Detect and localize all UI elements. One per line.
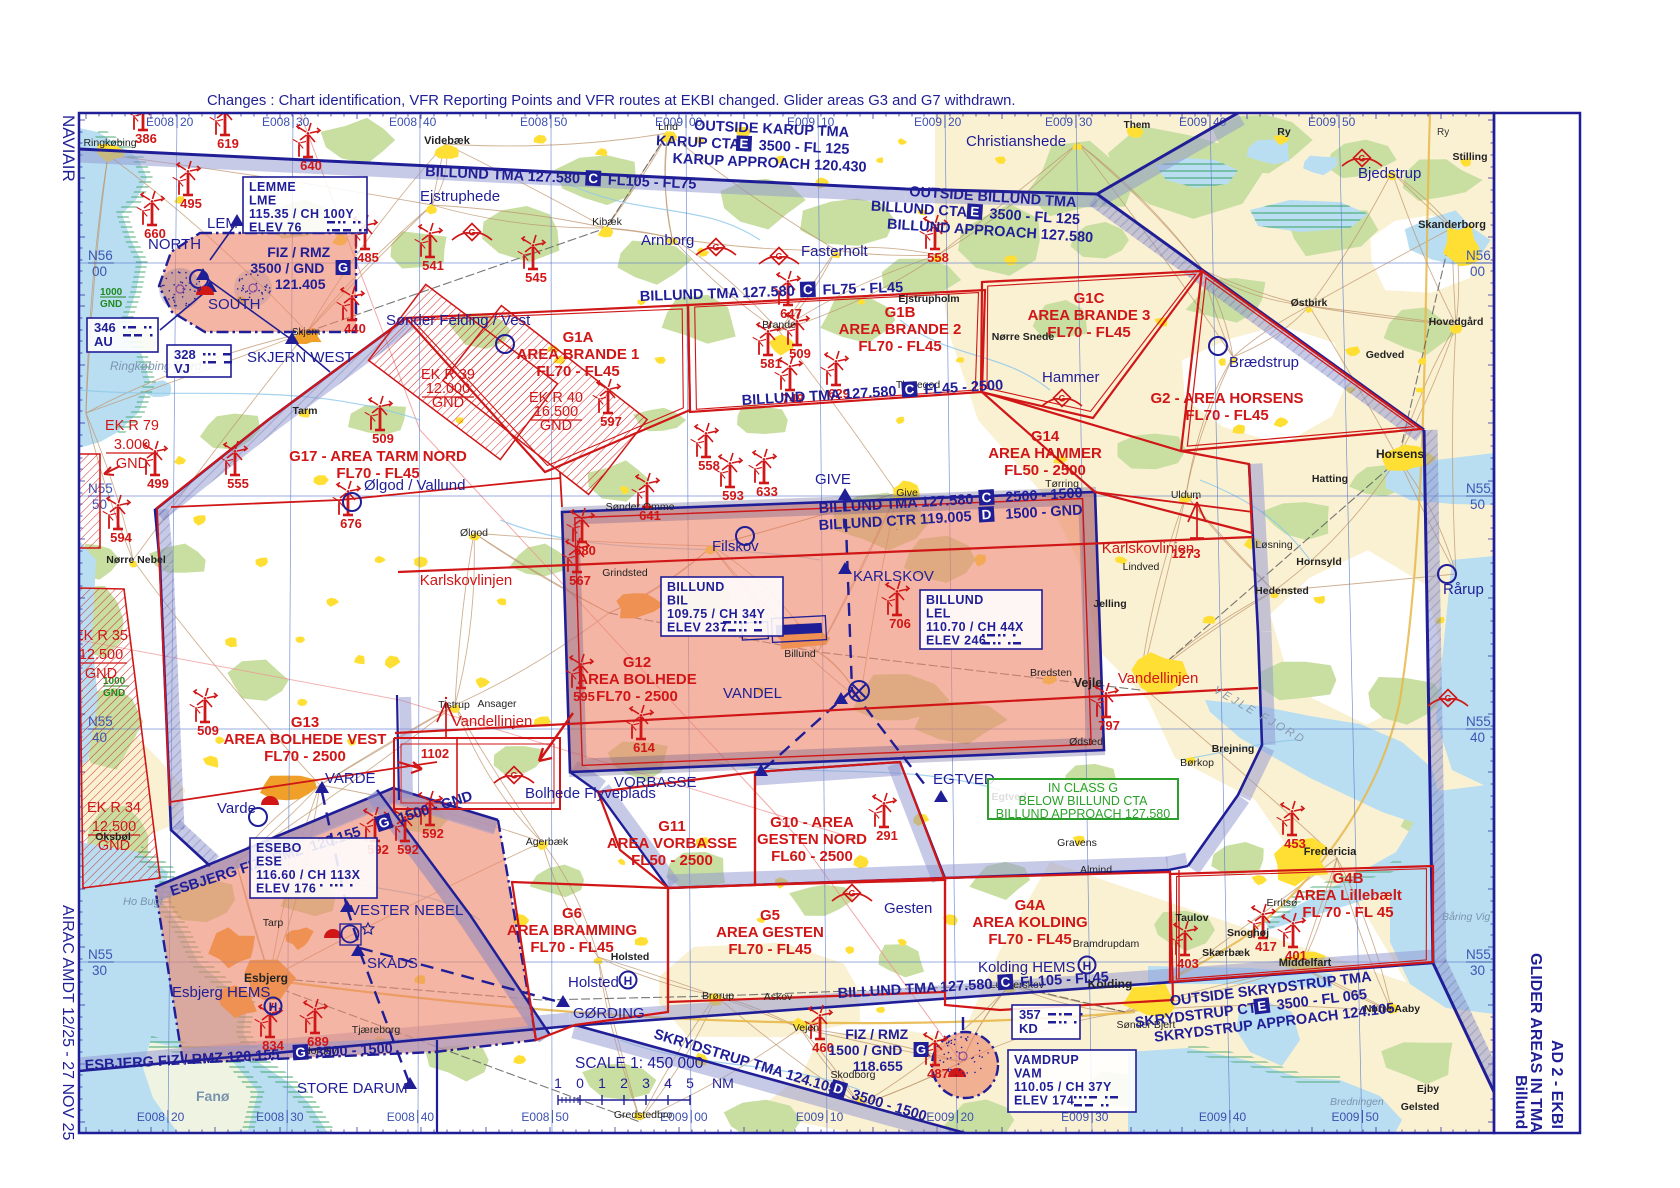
svg-text:N56: N56	[88, 248, 113, 263]
svg-text:E009: E009	[1331, 1110, 1359, 1124]
svg-text:40: 40	[421, 1110, 435, 1124]
svg-text:FL 70 - FL 45: FL 70 - FL 45	[1302, 904, 1393, 921]
svg-text:E008: E008	[146, 115, 174, 129]
svg-text:G11: G11	[658, 818, 686, 835]
svg-text:Rårup: Rårup	[1443, 581, 1484, 598]
svg-text:Hedensted: Hedensted	[1255, 585, 1309, 597]
svg-text:Billund: Billund	[1512, 1075, 1529, 1129]
svg-text:G10 - AREA: G10 - AREA	[770, 814, 854, 831]
svg-text:1500 / GND: 1500 / GND	[828, 1042, 906, 1058]
svg-text:GND: GND	[85, 666, 117, 682]
svg-text:121.405: 121.405	[275, 276, 326, 292]
svg-text:Børkop: Børkop	[1180, 757, 1214, 769]
svg-text:Arnborg: Arnborg	[641, 232, 694, 249]
svg-text:BILLUND: BILLUND	[926, 593, 984, 607]
svg-text:EK R 35: EK R 35	[74, 628, 128, 644]
svg-text:Holsted: Holsted	[568, 974, 619, 991]
svg-text:C: C	[803, 282, 814, 297]
svg-text:509: 509	[197, 723, 219, 738]
svg-text:Bramdrupdam: Bramdrupdam	[1073, 938, 1140, 950]
svg-text:Hovedgård: Hovedgård	[1429, 316, 1484, 328]
svg-text:118.655: 118.655	[853, 1058, 903, 1074]
svg-text:597: 597	[600, 414, 622, 429]
svg-text:E009: E009	[914, 115, 942, 129]
svg-text:Lind: Lind	[658, 121, 678, 133]
svg-text:30: 30	[1079, 115, 1093, 129]
svg-text:NORTH: NORTH	[148, 236, 201, 253]
svg-text:G: G	[338, 260, 348, 275]
svg-text:3: 3	[642, 1075, 650, 1091]
svg-text:AREA Lillebælt: AREA Lillebælt	[1294, 887, 1402, 904]
svg-text:50: 50	[1470, 497, 1485, 512]
svg-text:Ansager: Ansager	[477, 698, 517, 710]
svg-text:00: 00	[92, 264, 107, 279]
svg-text:Brædstrup: Brædstrup	[1229, 354, 1299, 371]
svg-text:GND: GND	[100, 299, 122, 310]
svg-text:Brejning: Brejning	[1212, 743, 1255, 755]
svg-text:595: 595	[573, 689, 595, 704]
svg-text:FL70 - FL45: FL70 - FL45	[988, 931, 1071, 948]
svg-text:E008: E008	[520, 115, 548, 129]
svg-text:30: 30	[92, 963, 107, 978]
svg-text:KD: KD	[1019, 1021, 1038, 1036]
svg-text:633: 633	[756, 484, 778, 499]
svg-text:EGTVED: EGTVED	[933, 771, 995, 788]
svg-text:706: 706	[889, 616, 911, 631]
svg-text:Skjern: Skjern	[292, 327, 320, 338]
svg-text:386: 386	[135, 131, 157, 146]
svg-text:0: 0	[576, 1075, 584, 1091]
svg-text:E008: E008	[521, 1110, 549, 1124]
svg-text:485: 485	[357, 250, 379, 265]
svg-text:Nørre Nebel: Nørre Nebel	[106, 554, 166, 566]
svg-text:Billund: Billund	[784, 648, 816, 660]
svg-text:FL60 - 2500: FL60 - 2500	[771, 848, 853, 865]
svg-text:Uldum: Uldum	[1171, 489, 1202, 501]
svg-text:495: 495	[180, 196, 202, 211]
svg-text:Tarm: Tarm	[293, 405, 318, 417]
svg-text:SCALE 1: 450 000: SCALE 1: 450 000	[575, 1055, 704, 1072]
svg-text:Filskov: Filskov	[712, 538, 759, 555]
svg-text:291: 291	[876, 828, 898, 843]
svg-text:Ho Bugt: Ho Bugt	[123, 896, 164, 908]
svg-text:SKADS: SKADS	[367, 955, 418, 972]
svg-text:FL70 - FL45: FL70 - FL45	[1047, 324, 1130, 341]
svg-text:E009: E009	[796, 1110, 824, 1124]
svg-text:Ry: Ry	[1437, 127, 1449, 138]
svg-text:FL75 - FL45: FL75 - FL45	[818, 280, 903, 299]
svg-text:Bredsten: Bredsten	[1030, 667, 1072, 679]
svg-text:Tarp: Tarp	[263, 917, 284, 929]
svg-text:G: G	[295, 1045, 306, 1061]
svg-text:E009: E009	[1179, 115, 1207, 129]
svg-text:G2 - AREA HORSENS: G2 - AREA HORSENS	[1150, 390, 1303, 407]
svg-text:00: 00	[1470, 264, 1485, 279]
svg-text:346: 346	[94, 320, 116, 335]
svg-text:G: G	[916, 1042, 926, 1057]
svg-text:Grindsted: Grindsted	[602, 567, 648, 579]
svg-text:VJ: VJ	[174, 361, 190, 376]
svg-text:Them: Them	[1124, 120, 1151, 131]
svg-text:E008: E008	[256, 1110, 284, 1124]
svg-text:5: 5	[686, 1075, 694, 1091]
svg-text:592: 592	[422, 826, 444, 841]
svg-text:1102: 1102	[421, 746, 449, 761]
svg-text:357: 357	[1019, 1007, 1041, 1022]
svg-text:Fredericia: Fredericia	[1304, 846, 1357, 858]
svg-text:40: 40	[1470, 730, 1485, 745]
svg-text:E: E	[970, 204, 980, 220]
svg-text:Hatting: Hatting	[1312, 473, 1348, 485]
svg-text:Esbjerg HEMS: Esbjerg HEMS	[172, 984, 270, 1001]
svg-text:C: C	[588, 171, 599, 186]
svg-text:545: 545	[525, 270, 547, 285]
svg-text:619: 619	[217, 136, 239, 151]
svg-text:VANDEL: VANDEL	[723, 685, 782, 702]
svg-text:Karlskovlinjen: Karlskovlinjen	[420, 572, 513, 589]
svg-text:Ringkøbing: Ringkøbing	[83, 137, 136, 149]
svg-text:Gedved: Gedved	[1366, 349, 1405, 361]
svg-text:40: 40	[1233, 1110, 1247, 1124]
svg-text:AIRAC AMDT 12/25 - 27 NOV 25: AIRAC AMDT 12/25 - 27 NOV 25	[59, 905, 76, 1140]
svg-text:50: 50	[554, 115, 568, 129]
svg-text:Changes : Chart identification: Changes : Chart identification, VFR Repo…	[207, 93, 1016, 109]
svg-text:E009: E009	[1045, 115, 1073, 129]
svg-text:00: 00	[694, 1110, 708, 1124]
svg-text:VARDE: VARDE	[325, 770, 376, 787]
svg-text:VESTER NEBEL: VESTER NEBEL	[350, 902, 463, 919]
svg-text:G1C: G1C	[1074, 290, 1105, 307]
svg-text:N55: N55	[1466, 481, 1491, 496]
svg-text:Almind: Almind	[1080, 864, 1112, 876]
svg-text:Esbjerg: Esbjerg	[244, 971, 288, 985]
svg-text:G4A: G4A	[1015, 897, 1046, 914]
svg-text:LME: LME	[249, 194, 277, 208]
svg-text:509: 509	[372, 431, 394, 446]
svg-text:50: 50	[1342, 115, 1356, 129]
svg-text:FL70 - 2500: FL70 - 2500	[264, 748, 346, 765]
svg-text:Ølgod: Ølgod	[460, 527, 488, 539]
svg-text:BILLUND: BILLUND	[667, 580, 725, 594]
svg-text:1000: 1000	[100, 287, 123, 298]
svg-text:Videbæk: Videbæk	[424, 135, 471, 147]
svg-text:LEL: LEL	[926, 607, 951, 621]
svg-text:Brande: Brande	[762, 319, 796, 331]
svg-text:E008: E008	[389, 115, 417, 129]
svg-text:E: E	[739, 136, 749, 151]
svg-text:4: 4	[664, 1075, 672, 1091]
svg-text:Erritsø: Erritsø	[1267, 897, 1298, 909]
svg-text:115.35 / CH 100Y: 115.35 / CH 100Y	[249, 207, 354, 221]
svg-text:GØRDING: GØRDING	[573, 1005, 645, 1022]
svg-text:Hornsyld: Hornsyld	[1296, 556, 1342, 568]
svg-text:109.75 / CH 34Y: 109.75 / CH 34Y	[667, 607, 766, 621]
svg-text:ELEV 174: ELEV 174	[1014, 1094, 1074, 1108]
svg-text:G17 - AREA TARM NORD: G17 - AREA TARM NORD	[289, 448, 467, 465]
svg-text:Bjedstrup: Bjedstrup	[1358, 165, 1421, 182]
svg-text:1: 1	[554, 1075, 562, 1091]
svg-text:Skanderborg: Skanderborg	[1418, 219, 1486, 231]
svg-text:555: 555	[227, 476, 249, 491]
svg-text:Stilling: Stilling	[1453, 151, 1488, 163]
svg-text:ESEBO: ESEBO	[256, 841, 302, 855]
svg-text:N56: N56	[1466, 248, 1491, 263]
svg-text:20: 20	[180, 115, 194, 129]
svg-text:FL70 - FL45: FL70 - FL45	[1185, 407, 1268, 424]
svg-text:Jelling: Jelling	[1093, 598, 1126, 610]
svg-text:AREA HAMMER: AREA HAMMER	[988, 445, 1102, 462]
svg-text:328: 328	[174, 347, 196, 362]
svg-text:N55: N55	[88, 947, 113, 962]
svg-text:Gredstedbro: Gredstedbro	[614, 1109, 673, 1121]
svg-text:ELEV 176: ELEV 176	[256, 882, 316, 896]
svg-text:Østbirk: Østbirk	[1291, 297, 1328, 309]
svg-text:Fasterholt: Fasterholt	[801, 243, 869, 260]
svg-text:676: 676	[340, 516, 362, 531]
svg-text:110.70 / CH 44X: 110.70 / CH 44X	[926, 620, 1024, 634]
svg-text:Gesten: Gesten	[884, 900, 932, 917]
svg-text:417: 417	[1255, 939, 1277, 954]
svg-text:G1A: G1A	[563, 329, 594, 346]
svg-text:H: H	[624, 974, 633, 988]
svg-text:440: 440	[344, 321, 366, 336]
svg-text:LEM: LEM	[207, 215, 238, 232]
svg-text:Vandellinjen: Vandellinjen	[1118, 670, 1199, 687]
svg-text:EK R 79: EK R 79	[105, 418, 159, 434]
svg-text:Løsning: Løsning	[1255, 539, 1293, 551]
svg-text:C: C	[904, 382, 915, 398]
svg-text:Gravens: Gravens	[1057, 837, 1097, 849]
svg-text:Ejstruphede: Ejstruphede	[420, 188, 500, 205]
svg-text:Oksbøl: Oksbøl	[95, 831, 131, 843]
svg-text:E008: E008	[262, 115, 290, 129]
svg-text:Tistrup: Tistrup	[438, 699, 470, 711]
svg-text:567: 567	[569, 573, 591, 588]
svg-text:VAM: VAM	[1014, 1067, 1042, 1081]
svg-text:Sønder Felding / Vest: Sønder Felding / Vest	[386, 312, 531, 329]
svg-text:GND: GND	[432, 395, 464, 411]
svg-text:Bredningen: Bredningen	[1330, 1096, 1384, 1108]
svg-text:Varde: Varde	[217, 800, 256, 817]
svg-text:499: 499	[147, 476, 169, 491]
svg-text:STORE DARUM: STORE DARUM	[297, 1080, 408, 1097]
svg-text:614: 614	[633, 740, 655, 755]
svg-text:FL50 - 2500: FL50 - 2500	[631, 852, 713, 869]
svg-text:ELEV 246: ELEV 246	[926, 634, 986, 648]
svg-text:Nørre Snede: Nørre Snede	[992, 331, 1055, 343]
svg-text:453: 453	[1284, 836, 1306, 851]
svg-text:20: 20	[948, 115, 962, 129]
svg-text:Taulov: Taulov	[1175, 912, 1208, 924]
svg-text:Ry: Ry	[1277, 126, 1291, 138]
svg-text:ELEV 237: ELEV 237	[667, 621, 727, 635]
svg-text:403: 403	[1177, 956, 1199, 971]
svg-text:12.500: 12.500	[79, 647, 123, 663]
svg-text:G14: G14	[1031, 428, 1060, 445]
svg-text:G1B: G1B	[885, 304, 916, 321]
svg-text:110.05 / CH 37Y: 110.05 / CH 37Y	[1014, 1080, 1112, 1094]
svg-text:C: C	[1000, 974, 1011, 990]
svg-text:G6: G6	[562, 905, 582, 922]
svg-text:Ejstrupholm: Ejstrupholm	[898, 293, 959, 305]
svg-text:G5: G5	[760, 907, 780, 924]
svg-text:GIVE: GIVE	[815, 471, 851, 488]
svg-text:AREA BOLHEDE VEST: AREA BOLHEDE VEST	[224, 731, 387, 748]
svg-text:E009: E009	[1199, 1110, 1227, 1124]
svg-text:Christianshede: Christianshede	[966, 133, 1066, 150]
svg-text:D: D	[981, 507, 992, 523]
svg-text:SOUTH: SOUTH	[208, 296, 261, 313]
svg-text:E: E	[1257, 998, 1268, 1014]
svg-text:Agerbæk: Agerbæk	[526, 836, 569, 848]
svg-text:AREA KOLDING: AREA KOLDING	[972, 914, 1087, 931]
svg-text:Tjæreborg: Tjæreborg	[352, 1024, 401, 1036]
svg-text:Ølgod / Vallund: Ølgod / Vallund	[364, 477, 465, 494]
svg-text:AREA VORBASSE: AREA VORBASSE	[607, 835, 737, 852]
svg-text:FL70 - FL45: FL70 - FL45	[728, 941, 811, 958]
svg-text:594: 594	[110, 530, 132, 545]
svg-text:G4B: G4B	[1333, 870, 1364, 887]
svg-text:Båring Vig: Båring Vig	[1442, 911, 1490, 923]
svg-text:KARLSKOV: KARLSKOV	[853, 568, 934, 585]
svg-text:30: 30	[1470, 963, 1485, 978]
svg-text:Gelsted: Gelsted	[1401, 1101, 1440, 1113]
svg-text:50: 50	[1365, 1110, 1379, 1124]
svg-text:Ødsted: Ødsted	[1069, 736, 1103, 748]
svg-text:116.60 / CH 113X: 116.60 / CH 113X	[256, 868, 361, 882]
svg-text:FIZ / RMZ: FIZ / RMZ	[267, 244, 330, 260]
svg-text:640: 640	[300, 158, 322, 173]
svg-text:IN CLASS G: IN CLASS G	[1048, 781, 1118, 795]
svg-text:558: 558	[927, 250, 949, 265]
svg-text:FL70 - FL45: FL70 - FL45	[536, 363, 619, 380]
svg-text:BIL: BIL	[667, 594, 688, 608]
svg-text:Holsted: Holsted	[611, 951, 650, 963]
svg-text:E009: E009	[926, 1110, 954, 1124]
svg-text:AREA BRANDE 1: AREA BRANDE 1	[517, 346, 640, 363]
svg-text:E008: E008	[387, 1110, 415, 1124]
svg-text:C: C	[981, 490, 992, 506]
svg-text:SKJERN WEST: SKJERN WEST	[247, 349, 354, 366]
svg-text:20: 20	[960, 1110, 974, 1124]
svg-text:N55: N55	[1466, 947, 1491, 962]
svg-text:Bolhede Flyveplads: Bolhede Flyveplads	[525, 785, 656, 802]
svg-text:Askov: Askov	[764, 991, 793, 1003]
svg-text:Middelfart: Middelfart	[1279, 957, 1332, 969]
svg-text:2: 2	[620, 1075, 628, 1091]
svg-text:GND: GND	[116, 456, 148, 472]
svg-text:AU: AU	[94, 334, 113, 349]
svg-text:Hammer: Hammer	[1042, 369, 1100, 386]
svg-text:1: 1	[598, 1075, 606, 1091]
svg-text:LEMME: LEMME	[249, 180, 296, 194]
svg-text:Vejle: Vejle	[1074, 676, 1103, 690]
svg-text:Vandellinjen: Vandellinjen	[452, 713, 533, 730]
svg-text:FL70 - FL45: FL70 - FL45	[858, 338, 941, 355]
svg-text:FL50 - 2500: FL50 - 2500	[1004, 462, 1086, 479]
svg-text:581: 581	[760, 356, 782, 371]
svg-text:AREA BOLHEDE: AREA BOLHEDE	[577, 671, 696, 688]
svg-text:Kibæk: Kibæk	[592, 216, 623, 228]
svg-text:ESE: ESE	[256, 855, 282, 869]
svg-text:FL70 - 2500: FL70 - 2500	[596, 688, 678, 705]
svg-text:GND: GND	[540, 418, 572, 434]
svg-text:Vejen: Vejen	[793, 1022, 819, 1034]
svg-text:VAMDRUP: VAMDRUP	[1014, 1053, 1079, 1067]
svg-text:Horsens: Horsens	[1376, 447, 1424, 461]
svg-text:593: 593	[722, 488, 744, 503]
svg-text:BELOW BILLUND CTA: BELOW BILLUND CTA	[1019, 794, 1149, 808]
svg-text:FIZ / RMZ: FIZ / RMZ	[845, 1026, 908, 1042]
svg-text:797: 797	[1098, 718, 1120, 733]
svg-text:Snoghøj: Snoghøj	[1227, 927, 1269, 939]
svg-text:H: H	[269, 1000, 278, 1014]
svg-text:20: 20	[171, 1110, 185, 1124]
svg-text:AREA BRANDE 2: AREA BRANDE 2	[839, 321, 962, 338]
svg-text:3500 / GND: 3500 / GND	[250, 260, 328, 276]
svg-text:Fanø: Fanø	[196, 1088, 230, 1104]
svg-text:AREA BRAMMING: AREA BRAMMING	[507, 922, 637, 939]
svg-text:1273: 1273	[1172, 546, 1201, 561]
svg-text:541: 541	[422, 258, 444, 273]
svg-text:AREA GESTEN: AREA GESTEN	[716, 924, 824, 941]
svg-text:NM: NM	[712, 1075, 734, 1091]
svg-text:592: 592	[397, 842, 419, 857]
svg-text:50: 50	[555, 1110, 569, 1124]
svg-text:GESTEN NORD: GESTEN NORD	[757, 831, 867, 848]
svg-text:Brørup: Brørup	[702, 990, 734, 1002]
svg-text:Sønder Omme: Sønder Omme	[606, 501, 675, 513]
svg-text:EK R 34: EK R 34	[87, 800, 141, 816]
svg-text:Skærbæk: Skærbæk	[1202, 947, 1250, 959]
svg-text:30: 30	[290, 1110, 304, 1124]
svg-text:Lindved: Lindved	[1123, 561, 1160, 573]
svg-text:AREA BRANDE 3: AREA BRANDE 3	[1028, 307, 1151, 324]
svg-text:BILLUND APPROACH 127.580: BILLUND APPROACH 127.580	[996, 807, 1170, 821]
svg-text:ELEV 76: ELEV 76	[249, 221, 302, 235]
svg-text:G12: G12	[623, 654, 651, 671]
svg-text:Ejby: Ejby	[1417, 1083, 1439, 1095]
svg-text:FL70 - FL45: FL70 - FL45	[530, 939, 613, 956]
svg-text:AD 2 - EKBI: AD 2 - EKBI	[1548, 1040, 1565, 1129]
svg-text:E008: E008	[137, 1110, 165, 1124]
svg-text:40: 40	[423, 115, 437, 129]
svg-text:NAVIAIR: NAVIAIR	[59, 115, 78, 182]
svg-text:N55: N55	[1466, 714, 1491, 729]
svg-text:G13: G13	[291, 714, 319, 731]
svg-text:487: 487	[927, 1066, 949, 1081]
